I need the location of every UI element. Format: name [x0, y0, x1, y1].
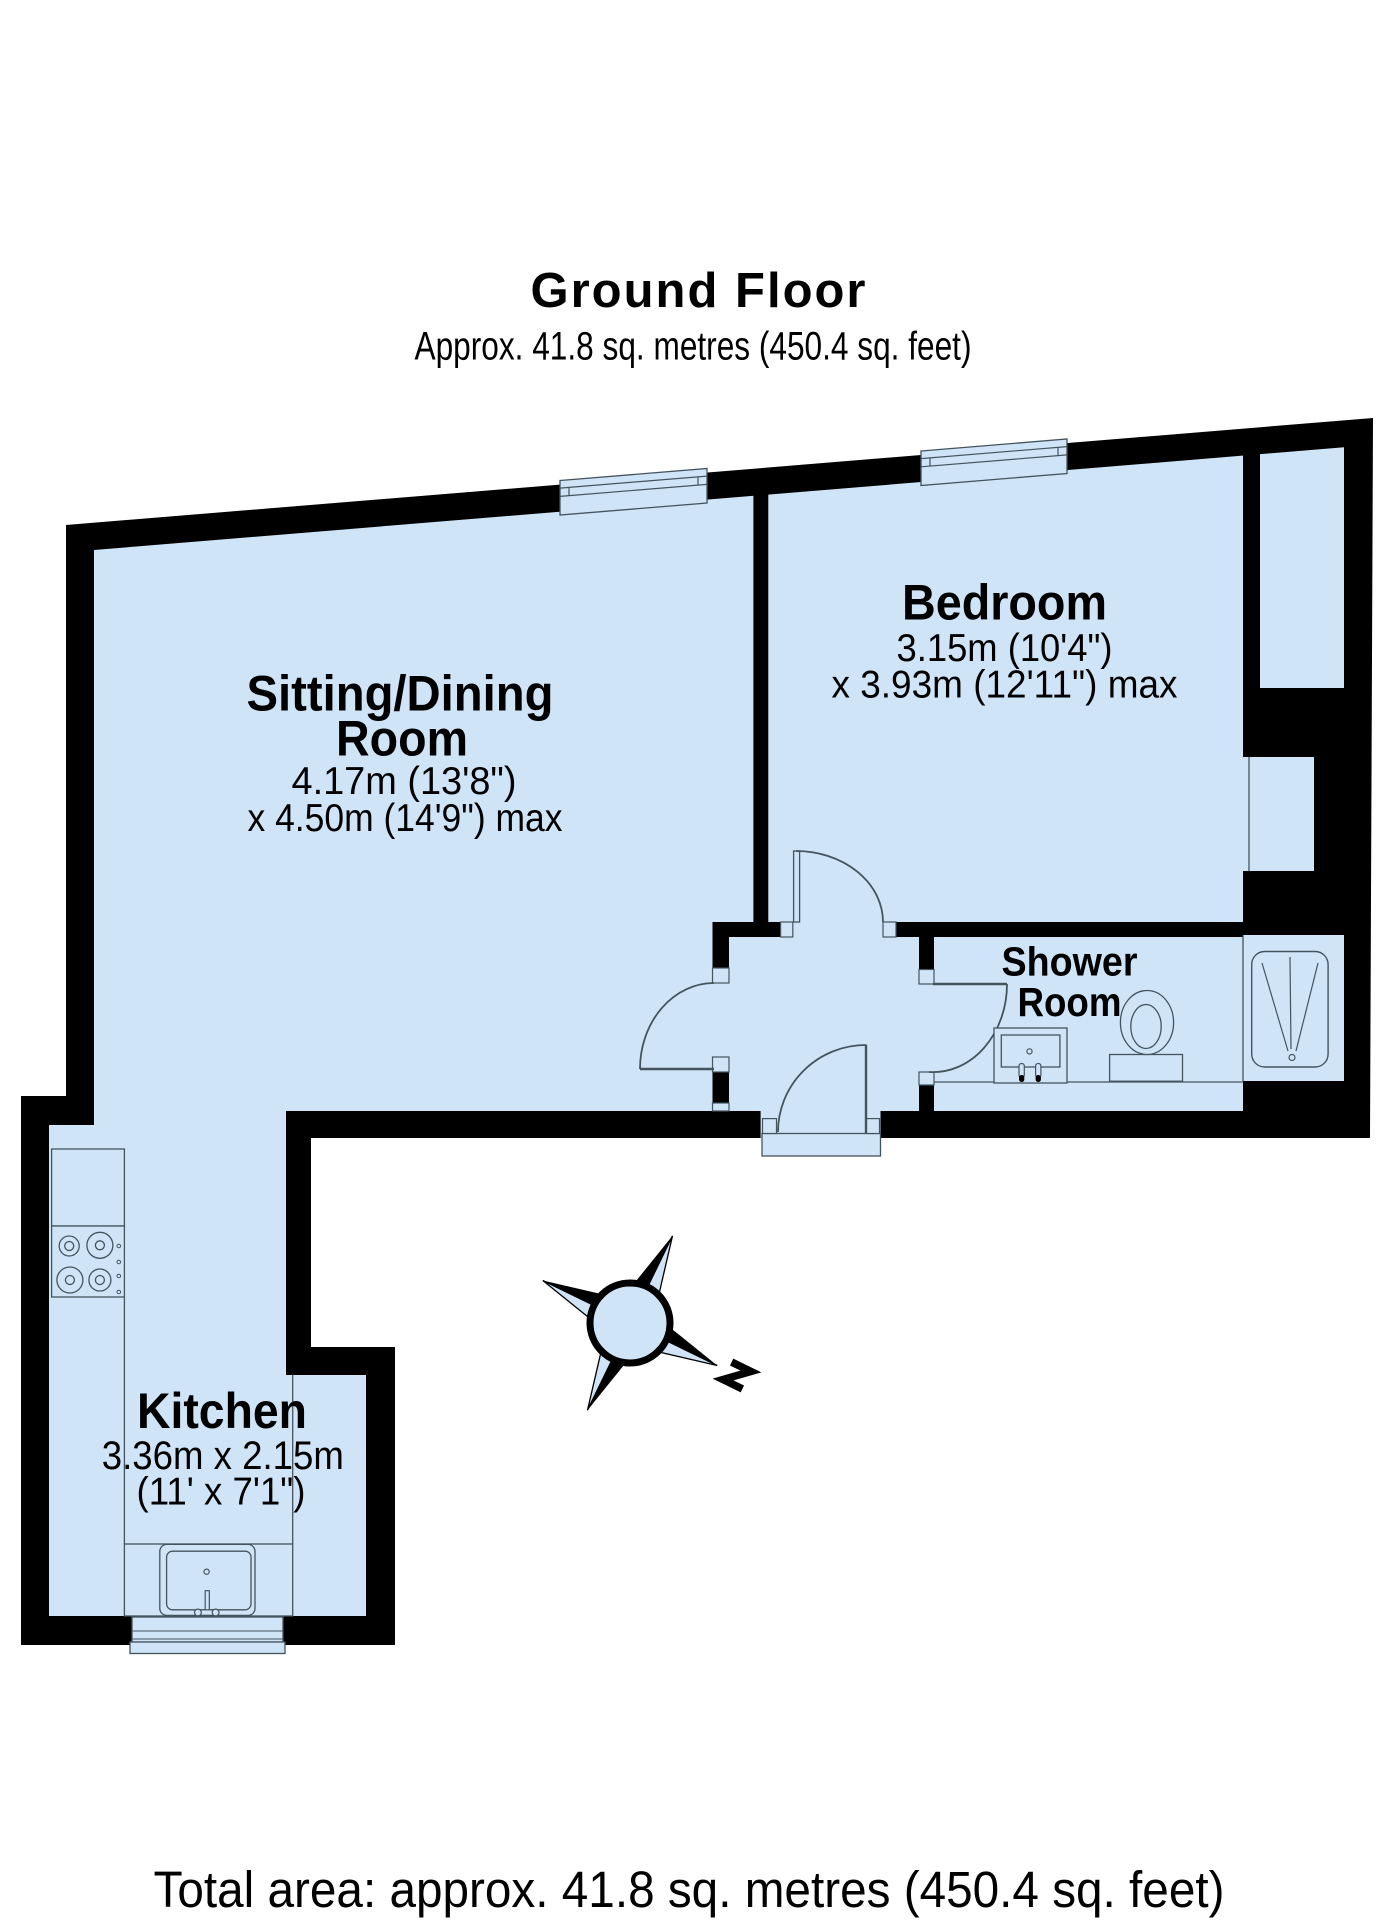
svg-text:Ground Floor: Ground Floor — [531, 264, 866, 318]
svg-text:x 4.50m (14'9") max: x 4.50m (14'9") max — [248, 797, 563, 840]
svg-text:Approx. 41.8 sq. metres (450.4: Approx. 41.8 sq. metres (450.4 sq. feet) — [415, 325, 972, 369]
svg-text:Shower: Shower — [1002, 939, 1138, 985]
svg-text:Room: Room — [336, 711, 468, 767]
svg-text:Bedroom: Bedroom — [902, 575, 1107, 631]
svg-text:x 3.93m (12'11") max: x 3.93m (12'11") max — [832, 664, 1178, 707]
svg-text:(11' x 7'1"): (11' x 7'1") — [137, 1471, 306, 1514]
svg-text:Kitchen: Kitchen — [137, 1383, 307, 1439]
svg-text:Total area: approx. 41.8 sq. m: Total area: approx. 41.8 sq. metres (450… — [154, 1861, 1225, 1918]
svg-text:Room: Room — [1018, 979, 1122, 1025]
